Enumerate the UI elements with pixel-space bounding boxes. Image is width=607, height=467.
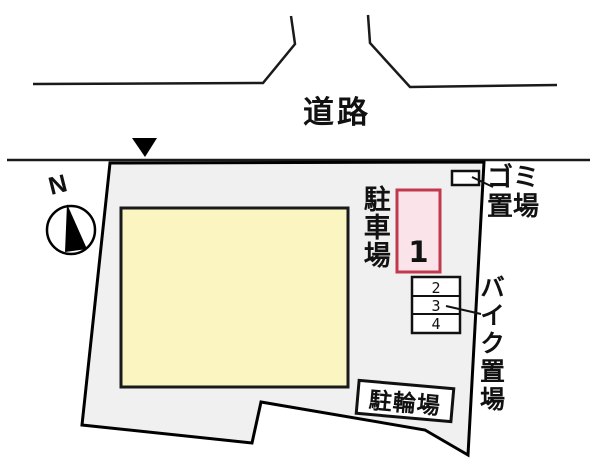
bicycle-parking-sign-label: 駐輪場 [368, 381, 443, 421]
bike-space-2-number: 2 [412, 279, 460, 297]
bike-space-3-number: 3 [412, 297, 460, 315]
garbage-label-line1: ゴミ [487, 162, 539, 192]
parking-space-1-number: 1 [397, 237, 440, 269]
entrance-marker-icon [132, 138, 157, 157]
parking-area-label: 駐車場 [359, 185, 389, 269]
building [121, 208, 348, 387]
road-edge-left [33, 16, 295, 84]
road-edge-right [368, 15, 557, 87]
site-plan-drawing [0, 0, 607, 467]
site-plan: 道路 ゴミ置場 駐車場 1 2 3 4 バイク置場 駐輪場 N [0, 0, 607, 467]
garbage-area-label: ゴミ置場 [487, 163, 539, 221]
bike-area-label: バイク置場 [476, 274, 504, 414]
road-label: 道路 [303, 96, 371, 130]
bike-space-4-number: 4 [412, 315, 460, 333]
garbage-label-line2: 置場 [487, 191, 539, 221]
